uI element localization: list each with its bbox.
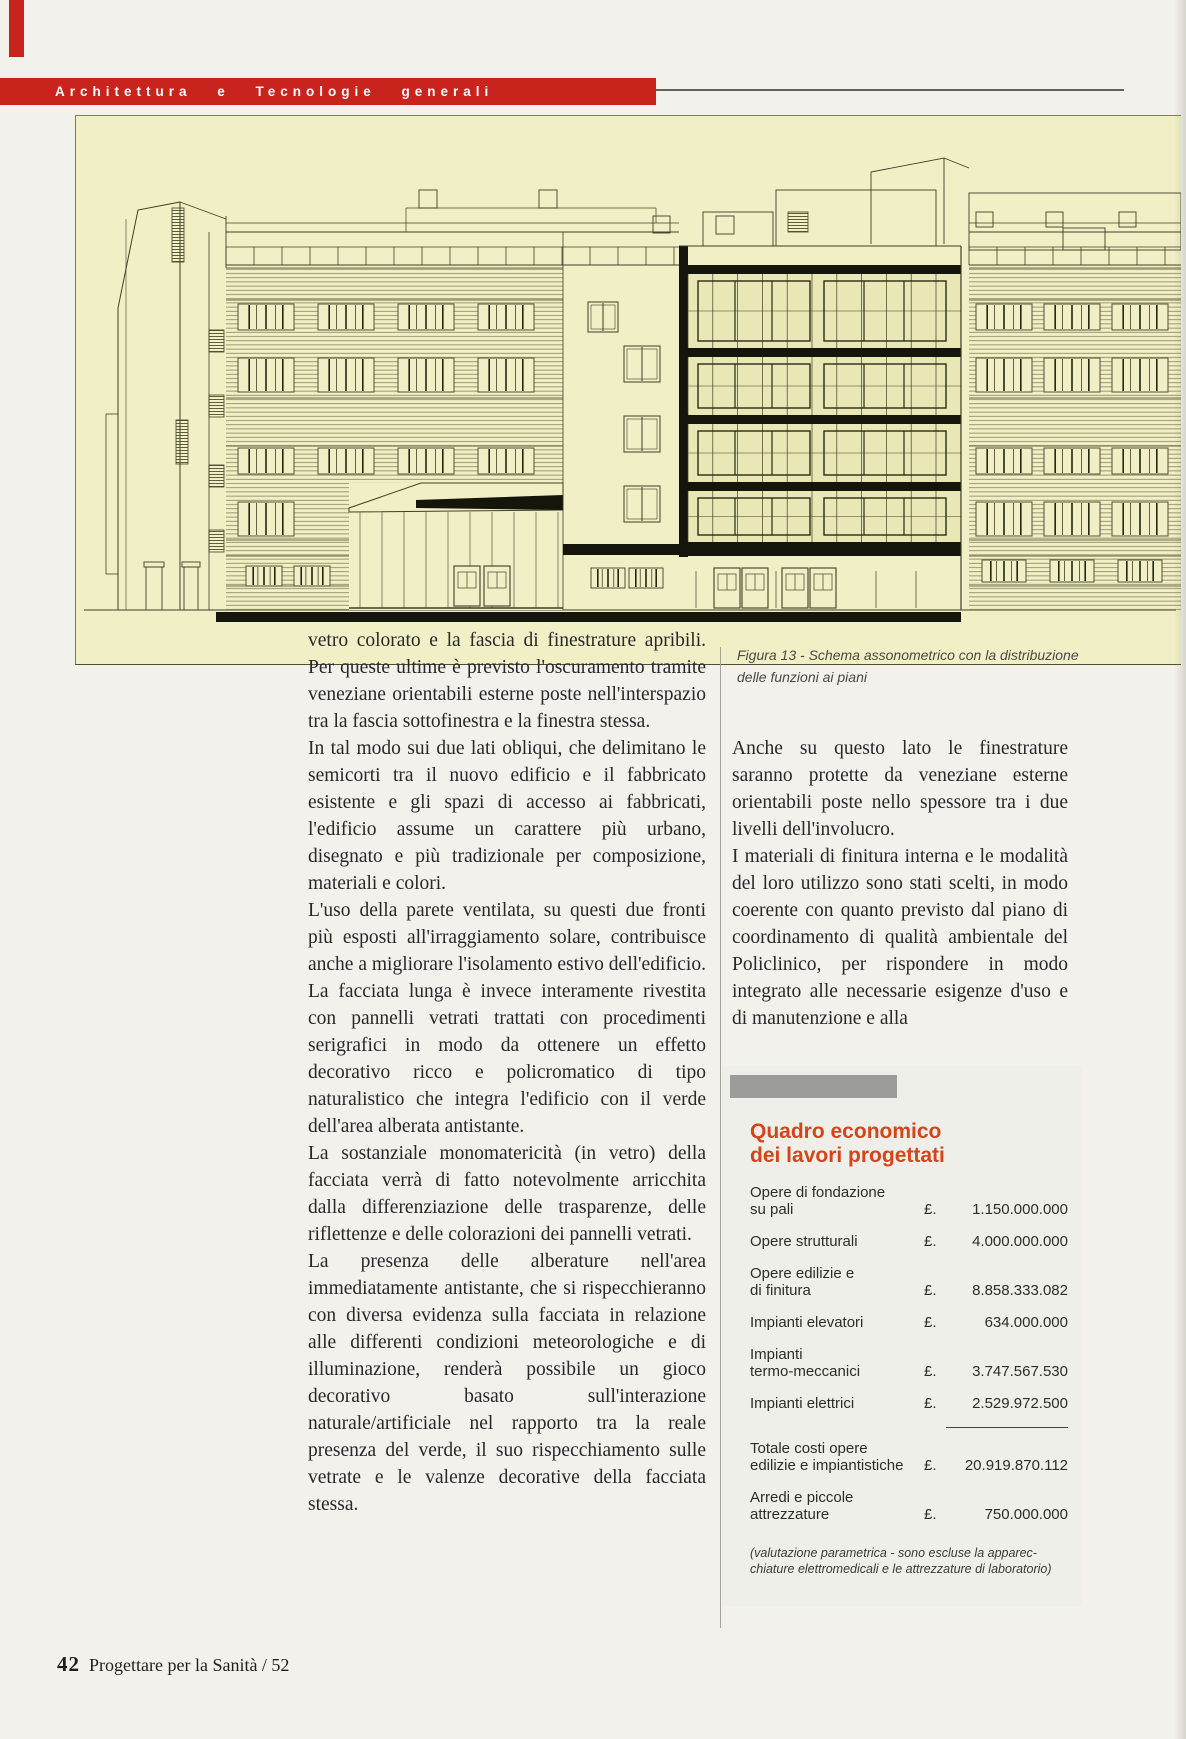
cost-table-title-line: Quadro economico <box>750 1120 1074 1144</box>
currency-symbol: £. <box>924 1233 952 1250</box>
cost-table-rows: Opere di fondazionesu pali£.1.150.000.00… <box>750 1184 1074 1523</box>
gray-decorative-bar <box>730 1075 897 1098</box>
cost-row: Opere strutturali£.4.000.000.000 <box>750 1233 1074 1250</box>
paragraph: vetro colorato e la fascia di finestratu… <box>308 627 706 735</box>
print-registration-mark <box>9 0 24 57</box>
cost-row: Impianti elevatori£.634.000.000 <box>750 1314 1074 1331</box>
column-divider <box>720 647 721 1628</box>
section-title: Architettura e Tecnologie generali <box>55 84 493 99</box>
paragraph: La facciata lunga è invece interamente r… <box>308 978 706 1140</box>
currency-symbol: £. <box>924 1506 952 1523</box>
total-separator-line <box>946 1427 1068 1428</box>
currency-symbol: £. <box>924 1395 952 1412</box>
cost-row: Opere di fondazionesu pali£.1.150.000.00… <box>750 1184 1074 1218</box>
page-number: 42 <box>57 1652 80 1677</box>
figure-caption-line: Figura 13 - Schema assonometrico con la … <box>737 645 1079 667</box>
paragraph: In tal modo sui due lati obliqui, che de… <box>308 735 706 897</box>
cost-row-label: Opere strutturali <box>750 1233 924 1250</box>
cost-row-value: 634.000.000 <box>952 1314 1074 1331</box>
cost-row-label: Impianti elevatori <box>750 1314 924 1331</box>
cost-row-label: Impiantitermo-meccanici <box>750 1346 924 1380</box>
cost-row: Impiantitermo-meccanici£.3.747.567.530 <box>750 1346 1074 1380</box>
journal-title: Progettare per la Sanità / 52 <box>89 1655 289 1676</box>
cost-row-label: Arredi e piccoleattrezzature <box>750 1489 924 1523</box>
cost-row-value: 4.000.000.000 <box>952 1233 1074 1250</box>
figure-elevation-panel <box>75 115 1181 665</box>
cost-table-footnote: (valutazione parametrica - sono escluse … <box>750 1545 1074 1577</box>
figure-caption-line: delle funzioni ai piani <box>737 667 1079 689</box>
cost-table-title-line: dei lavori progettati <box>750 1144 1074 1168</box>
paragraph: La presenza delle alberature nell'area i… <box>308 1248 706 1518</box>
paragraph: L'uso della parete ventilata, su questi … <box>308 897 706 978</box>
page-footer: 42 Progettare per la Sanità / 52 <box>57 1652 289 1677</box>
footnote-line: (valutazione parametrica - sono escluse … <box>750 1545 1074 1561</box>
cost-row: Impianti elettrici£.2.529.972.500 <box>750 1395 1074 1412</box>
cost-row: Arredi e piccoleattrezzature£.750.000.00… <box>750 1489 1074 1523</box>
section-header-band: Architettura e Tecnologie generali <box>0 78 656 105</box>
building-elevation-drawing <box>76 116 1181 663</box>
paragraph: La sostanziale monomatericità (in vetro)… <box>308 1140 706 1248</box>
cost-row-label: Impianti elettrici <box>750 1395 924 1412</box>
cost-row: Totale costi opereedilizie e impiantisti… <box>750 1440 1074 1474</box>
cost-row-value: 3.747.567.530 <box>952 1363 1074 1380</box>
magazine-page: Architettura e Tecnologie generali Figur… <box>0 0 1186 1739</box>
economic-summary-box: Quadro economico dei lavori progettati O… <box>722 1066 1082 1606</box>
figure-caption: Figura 13 - Schema assonometrico con la … <box>737 645 1079 688</box>
cost-row-label: Opere edilizie edi finitura <box>750 1265 924 1299</box>
currency-symbol: £. <box>924 1363 952 1380</box>
cost-row-value: 2.529.972.500 <box>952 1395 1074 1412</box>
header-rule <box>656 89 1124 91</box>
footnote-line: chiature elettromedicali e le attrezzatu… <box>750 1561 1074 1577</box>
paragraph: Anche su questo lato le finestrature sar… <box>732 735 1068 843</box>
right-text-column: Anche su questo lato le finestrature sar… <box>732 735 1068 1032</box>
cost-row-label: Totale costi opereedilizie e impiantisti… <box>750 1440 924 1474</box>
cost-row: Opere edilizie edi finitura£.8.858.333.0… <box>750 1265 1074 1299</box>
cost-row-value: 8.858.333.082 <box>952 1282 1074 1299</box>
currency-symbol: £. <box>924 1201 952 1218</box>
cost-row-label: Opere di fondazionesu pali <box>750 1184 924 1218</box>
cost-table-title: Quadro economico dei lavori progettati <box>750 1120 1074 1168</box>
currency-symbol: £. <box>924 1457 952 1474</box>
cost-row-value: 20.919.870.112 <box>952 1457 1074 1474</box>
cost-row-value: 1.150.000.000 <box>952 1201 1074 1218</box>
currency-symbol: £. <box>924 1314 952 1331</box>
paragraph: I materiali di finitura interna e le mod… <box>732 843 1068 1032</box>
page-edge-shadow <box>1174 0 1186 1739</box>
currency-symbol: £. <box>924 1282 952 1299</box>
left-text-column: vetro colorato e la fascia di finestratu… <box>308 627 706 1518</box>
cost-row-value: 750.000.000 <box>952 1506 1074 1523</box>
